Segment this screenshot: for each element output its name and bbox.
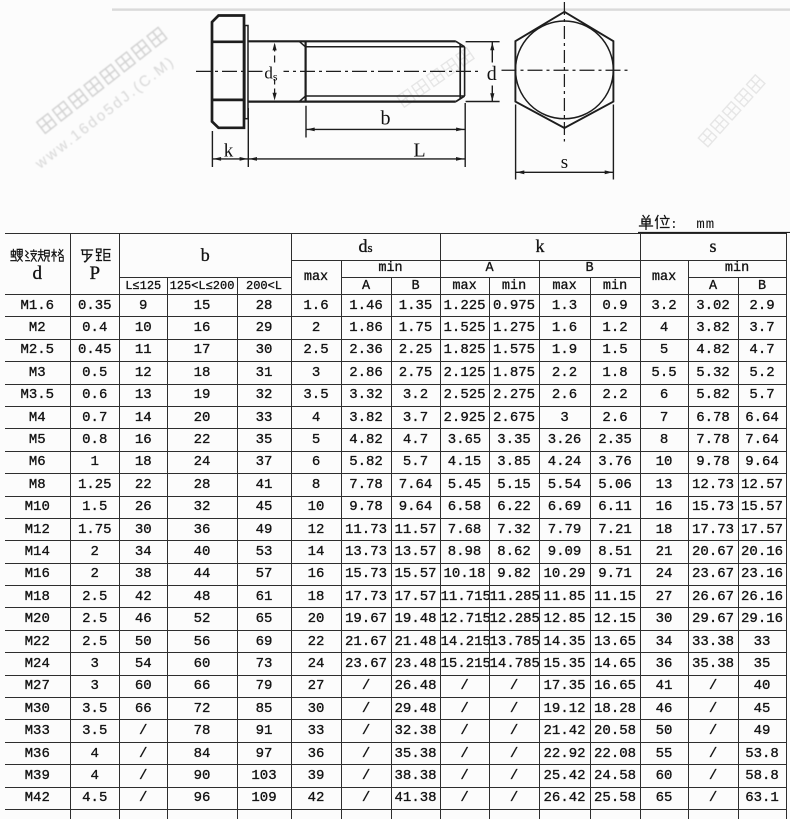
svg-text:b: b (381, 108, 391, 130)
svg-text:s: s (561, 152, 568, 173)
svg-text:d: d (487, 63, 497, 85)
svg-text:k: k (224, 141, 234, 162)
svg-text:www.16do5dJ.(C.M): www.16do5dJ.(C.M) (31, 53, 178, 173)
svg-text:L: L (413, 140, 425, 162)
